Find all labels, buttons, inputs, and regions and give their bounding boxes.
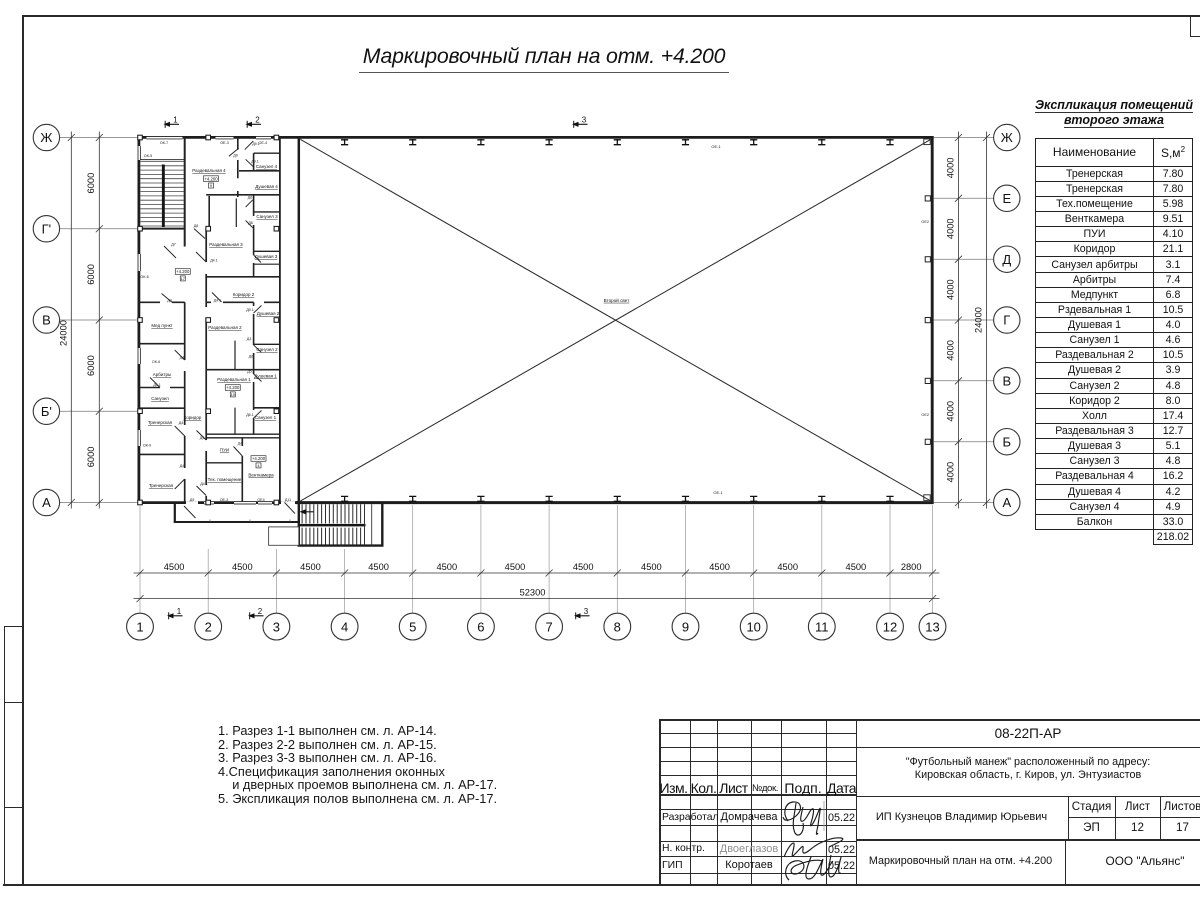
svg-text:В: В: [42, 313, 51, 328]
svg-text:Санузел 2: Санузел 2: [256, 347, 278, 352]
svg-text:3: 3: [273, 619, 280, 634]
svg-text:Второй свет: Второй свет: [604, 297, 631, 303]
svg-text:Д4.1: Д4.1: [200, 436, 208, 440]
svg-text:Б': Б': [41, 404, 52, 419]
svg-text:24000: 24000: [974, 307, 984, 333]
svg-text:Арбитры: Арбитры: [153, 372, 171, 377]
svg-text:Мед пункт: Мед пункт: [151, 323, 172, 328]
svg-text:5: 5: [409, 619, 416, 634]
svg-text:3: 3: [582, 115, 587, 124]
svg-text:52300: 52300: [520, 587, 546, 597]
svg-text:4000: 4000: [946, 279, 956, 300]
svg-text:Д6: Д6: [248, 221, 253, 225]
svg-text:4000: 4000: [946, 401, 956, 422]
svg-text:Д6: Д6: [248, 196, 253, 200]
svg-text:11: 11: [815, 619, 829, 634]
svg-text:+4.200: +4.200: [252, 456, 266, 461]
svg-text:13: 13: [925, 619, 939, 634]
svg-text:ОК-6: ОК-6: [140, 275, 148, 279]
svg-text:Д3: Д3: [247, 337, 252, 341]
svg-text:Раздевальная 3: Раздевальная 3: [209, 242, 243, 247]
svg-text:6000: 6000: [86, 264, 96, 285]
svg-text:Коридор 2: Коридор 2: [233, 292, 255, 297]
svg-text:2800: 2800: [901, 562, 922, 572]
svg-text:ОК-7: ОК-7: [160, 141, 168, 145]
svg-text:24000: 24000: [58, 320, 68, 346]
svg-text:Д4: Д4: [180, 356, 185, 360]
svg-text:3: 3: [584, 607, 589, 616]
svg-text:ОЕ-1: ОЕ-1: [713, 490, 723, 495]
svg-text:10: 10: [746, 619, 760, 634]
svg-text:4500: 4500: [368, 562, 389, 572]
svg-text:Б: Б: [1003, 434, 1012, 449]
svg-text:Тренерская: Тренерская: [148, 420, 173, 425]
svg-text:Санузел 4: Санузел 4: [256, 164, 278, 169]
svg-text:+4.200: +4.200: [176, 269, 190, 274]
svg-text:4000: 4000: [946, 462, 956, 483]
svg-text:Санузел: Санузел: [151, 396, 169, 401]
svg-text:ОК-5: ОК-5: [144, 154, 152, 158]
svg-text:4500: 4500: [505, 562, 526, 572]
svg-text:7: 7: [545, 619, 552, 634]
svg-text:Д4: Д4: [167, 299, 172, 303]
svg-text:6000: 6000: [86, 355, 96, 376]
svg-text:4500: 4500: [573, 562, 594, 572]
svg-text:Тренерская: Тренерская: [149, 483, 174, 488]
svg-text:2: 2: [205, 619, 212, 634]
svg-text:Ж: Ж: [1001, 130, 1013, 145]
svg-text:Душевая 3: Душевая 3: [255, 254, 278, 259]
svg-text:А: А: [1002, 495, 1011, 510]
svg-text:9: 9: [682, 619, 689, 634]
svg-text:Санузел 3: Санузел 3: [256, 214, 278, 219]
svg-text:ОЕ2: ОЕ2: [921, 220, 929, 224]
svg-text:Д4.1: Д4.1: [210, 259, 218, 263]
svg-text:6000: 6000: [86, 447, 96, 468]
svg-text:4500: 4500: [164, 562, 185, 572]
svg-text:+4.200: +4.200: [204, 176, 218, 181]
svg-text:1: 1: [136, 619, 143, 634]
svg-text:Г: Г: [1003, 313, 1010, 328]
svg-text:Д7: Д7: [171, 243, 176, 247]
svg-text:Коридор: Коридор: [184, 415, 202, 420]
svg-text:Венткамера: Венткамера: [248, 473, 274, 478]
svg-text:Раздевальная 2: Раздевальная 2: [208, 325, 242, 330]
svg-text:6000: 6000: [86, 173, 96, 194]
svg-text:4500: 4500: [232, 562, 253, 572]
svg-text:Д5.1: Д5.1: [247, 370, 255, 374]
svg-text:4500: 4500: [846, 562, 867, 572]
svg-text:Д4: Д4: [179, 421, 184, 425]
svg-text:ОК-6: ОК-6: [152, 360, 160, 364]
svg-text:Ж: Ж: [40, 130, 52, 145]
svg-text:ПУИ: ПУИ: [220, 448, 229, 453]
svg-text:4500: 4500: [300, 562, 321, 572]
svg-text:Д11: Д11: [285, 498, 291, 502]
svg-text:4000: 4000: [946, 218, 956, 239]
svg-text:4500: 4500: [777, 562, 798, 572]
svg-text:ОЕ4: ОЕ4: [257, 498, 264, 502]
svg-text:6: 6: [477, 619, 484, 634]
svg-text:4000: 4000: [946, 340, 956, 361]
svg-text:4500: 4500: [709, 562, 730, 572]
svg-text:1: 1: [177, 607, 182, 616]
svg-text:Раздевальная 4: Раздевальная 4: [192, 168, 226, 173]
svg-text:4: 4: [341, 619, 348, 634]
svg-text:Д8: Д8: [194, 224, 199, 228]
svg-text:Раздевальная 1: Раздевальная 1: [217, 377, 251, 382]
svg-text:Д5.1: Д5.1: [246, 308, 254, 312]
svg-text:ОЕ-3: ОЕ-3: [220, 498, 229, 502]
svg-text:Д6.1: Д6.1: [246, 413, 254, 417]
svg-text:ОЕ-1: ОЕ-1: [711, 144, 721, 149]
svg-text:1: 1: [173, 115, 178, 124]
svg-text:17: 17: [181, 276, 185, 281]
svg-text:В: В: [1002, 374, 1011, 389]
svg-text:4000: 4000: [946, 158, 956, 179]
svg-text:Д4: Д4: [180, 464, 185, 468]
svg-text:Д4: Д4: [238, 442, 243, 446]
svg-text:ОЕ-3: ОЕ-3: [220, 141, 229, 145]
svg-text:4500: 4500: [641, 562, 662, 572]
svg-text:8: 8: [614, 619, 621, 634]
svg-text:Д9: Д9: [233, 154, 238, 158]
svg-text:Тех. помещение: Тех. помещение: [208, 477, 242, 482]
svg-text:Душевая 2: Душевая 2: [257, 311, 280, 316]
svg-text:Д9.1: Д9.1: [252, 142, 260, 146]
svg-text:Г': Г': [42, 221, 52, 236]
svg-text:ОЕ2: ОЕ2: [921, 413, 929, 417]
svg-text:Душевая 1: Душевая 1: [254, 374, 277, 379]
svg-text:2: 2: [255, 115, 260, 124]
svg-text:Д5.1: Д5.1: [153, 383, 161, 387]
svg-text:Д6: Д6: [249, 355, 254, 359]
svg-text:А: А: [42, 495, 51, 510]
svg-text:Е: Е: [1002, 191, 1011, 206]
svg-text:Санузел 1: Санузел 1: [255, 415, 277, 420]
svg-text:Д9.1: Д9.1: [251, 160, 259, 164]
svg-text:Д: Д: [1002, 252, 1011, 267]
svg-text:Д4.1: Д4.1: [200, 482, 208, 486]
svg-text:9: 9: [210, 183, 212, 188]
svg-text:2: 2: [258, 607, 263, 616]
svg-text:12: 12: [883, 619, 897, 634]
svg-text:+4.200: +4.200: [226, 385, 240, 390]
svg-text:ОК-9: ОК-9: [143, 444, 151, 448]
svg-text:Д4.1: Д4.1: [214, 299, 222, 303]
svg-text:Д9: Д9: [190, 498, 195, 502]
svg-text:4500: 4500: [436, 562, 457, 572]
svg-text:Душевая 4: Душевая 4: [255, 184, 278, 189]
